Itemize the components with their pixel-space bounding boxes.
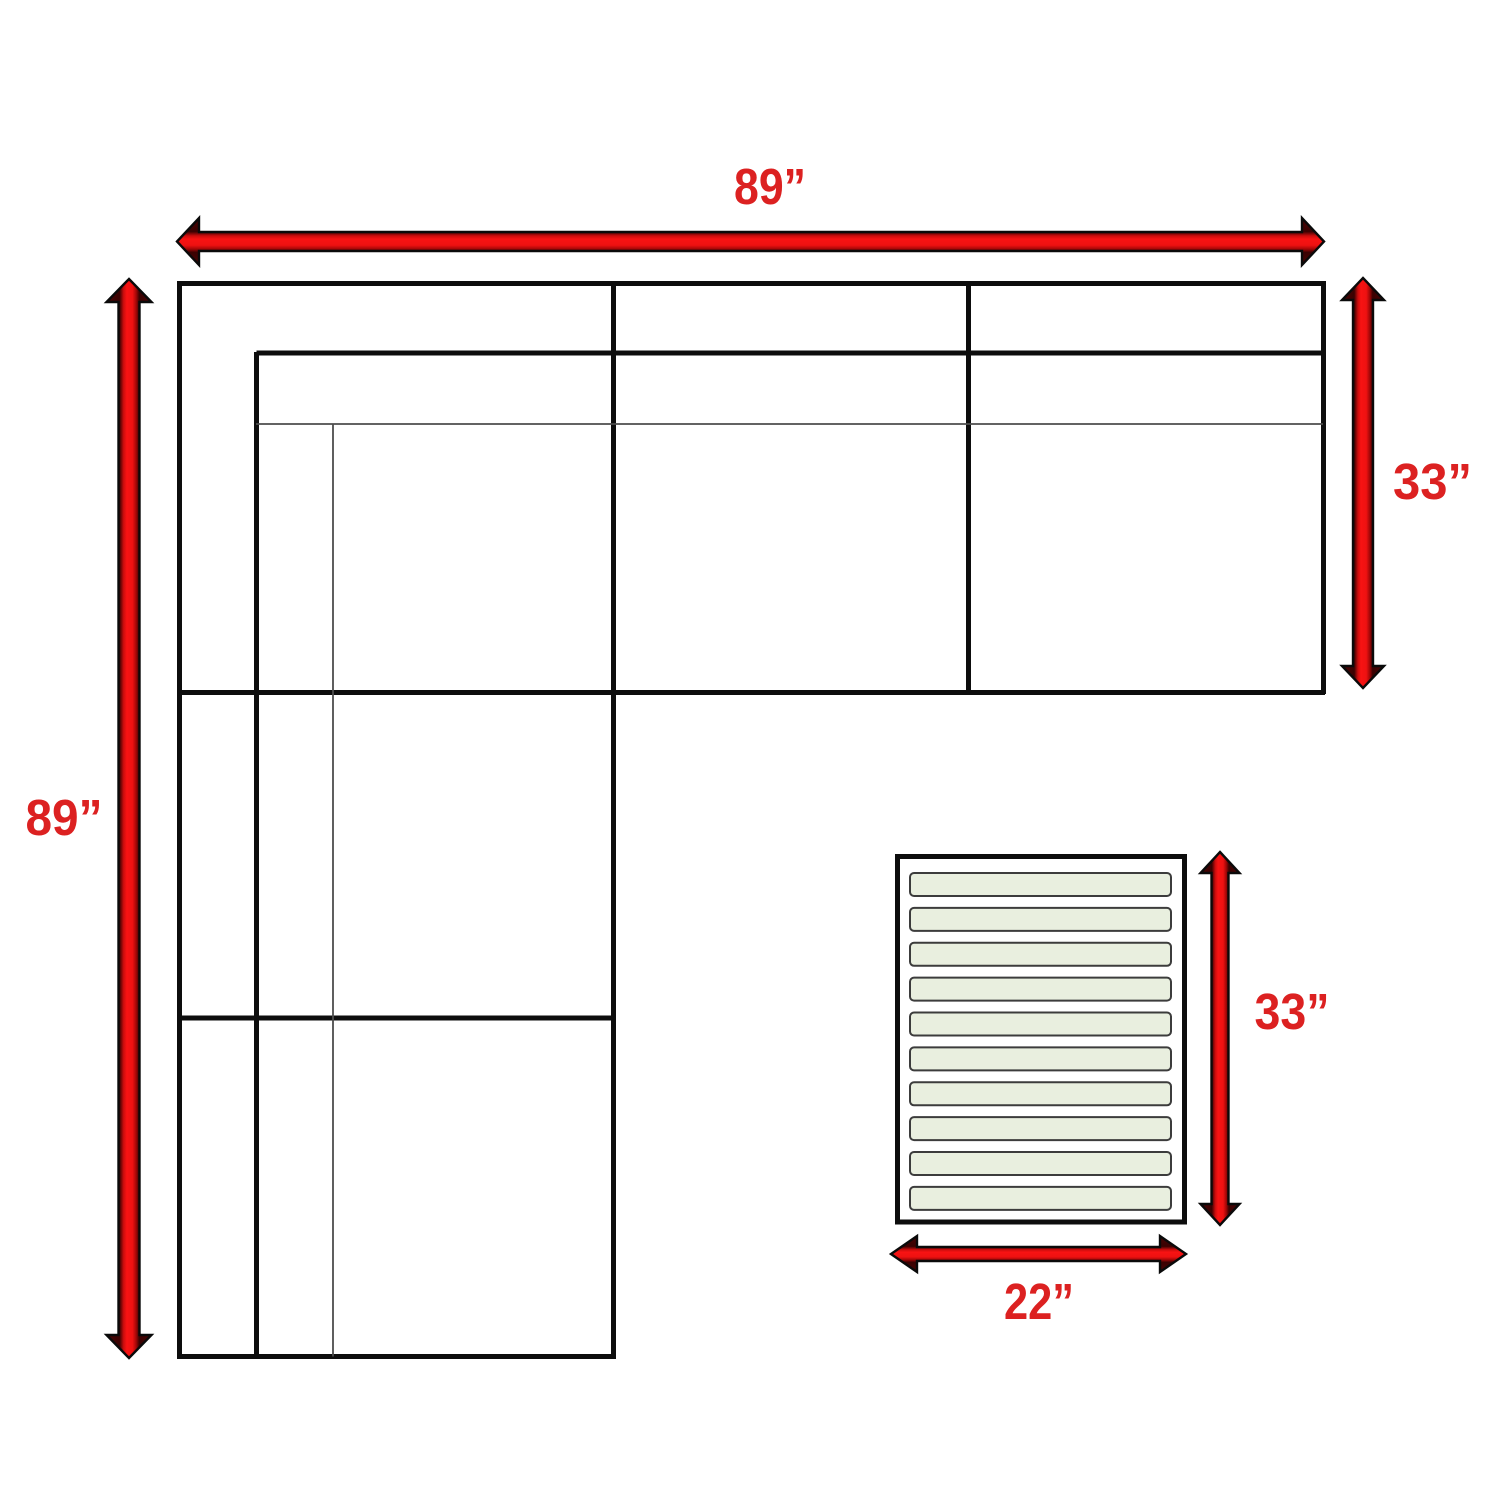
svg-text:33”: 33” <box>1393 453 1472 510</box>
svg-text:89”: 89” <box>26 789 103 846</box>
svg-text:89”: 89” <box>734 158 806 215</box>
svg-text:33”: 33” <box>1255 983 1330 1040</box>
svg-text:22”: 22” <box>1004 1273 1074 1330</box>
